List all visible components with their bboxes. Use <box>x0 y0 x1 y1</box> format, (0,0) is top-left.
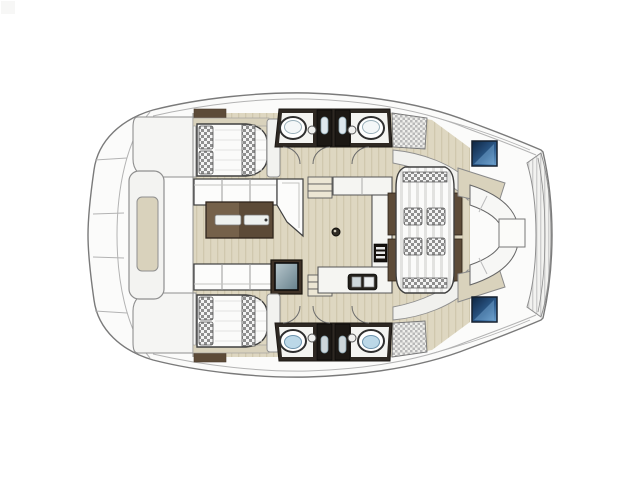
cabin-top <box>193 109 280 177</box>
table-tray <box>215 215 241 225</box>
seat-cushion <box>427 238 445 255</box>
lounge-pad <box>396 167 454 293</box>
faucet <box>308 126 316 134</box>
faucet <box>348 126 356 134</box>
sink-bowl <box>285 121 302 134</box>
galley-sink-basin <box>352 277 361 287</box>
table-leg-socket <box>332 228 340 236</box>
sink-bowl <box>285 336 302 349</box>
bed-runner <box>242 296 255 346</box>
pad-band <box>403 278 447 288</box>
seat-cushion <box>404 208 422 225</box>
stairs-top <box>308 177 332 198</box>
pillow <box>199 322 213 345</box>
shower-door-handle <box>321 117 328 134</box>
cabin-top-locker <box>194 109 226 118</box>
catamaran-floor-plan <box>0 0 640 480</box>
tv-screen <box>275 263 298 290</box>
faucet <box>348 334 356 342</box>
tray-knob <box>265 219 268 222</box>
seat-cushion <box>427 208 445 225</box>
foredeck-lounge-pad <box>137 197 158 271</box>
screenshot-canvas <box>0 0 640 480</box>
shower-door-handle <box>321 336 328 353</box>
foredeck-panel-bottom <box>133 293 196 353</box>
cockpit-lounge-pad <box>388 167 462 293</box>
cockpit-table <box>499 219 525 247</box>
pillow <box>199 297 213 320</box>
sofa-top <box>194 179 277 205</box>
seat-cushion <box>404 238 422 255</box>
galley-sink-basin <box>364 277 374 287</box>
foredeck-panel-top <box>133 117 196 177</box>
corner-watermark <box>1 1 15 14</box>
pad-band <box>403 172 447 182</box>
bed-runner <box>242 125 255 175</box>
shower-door-handle <box>339 117 346 134</box>
socket-highlight <box>334 230 337 233</box>
cabin-bottom <box>193 294 280 362</box>
woven-helm-seat-bottom <box>392 321 427 357</box>
pillow <box>199 151 213 174</box>
woven-helm-seat-top <box>392 113 427 149</box>
faucet <box>308 334 316 342</box>
sink-bowl <box>363 121 380 134</box>
cabin-bottom-locker <box>194 353 226 362</box>
sink-bowl <box>363 336 380 349</box>
shower-door-handle <box>339 336 346 353</box>
sofa-bottom <box>194 264 277 290</box>
pillow <box>199 126 213 149</box>
